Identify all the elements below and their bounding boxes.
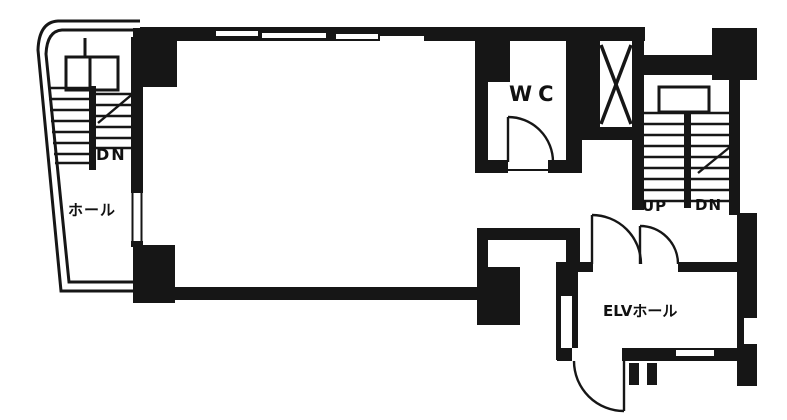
- wc-room-walls: [475, 40, 582, 173]
- door-swing-arc: [508, 117, 553, 162]
- main-room-left-wall: [131, 37, 143, 247]
- elv-hall-top-wall-right: [678, 262, 737, 272]
- elevator-hall-label: ELVホール: [603, 304, 677, 319]
- elv-hall-exit-door: [574, 361, 624, 411]
- elv-hall-left-window: [561, 296, 572, 353]
- door-swing-arc: [574, 361, 624, 411]
- left-stair-landing: [66, 57, 118, 90]
- right-stair-right-wall: [729, 75, 740, 215]
- door-stub: [647, 363, 657, 385]
- right-wall-window: [744, 318, 757, 344]
- right-stair-dn-label: DN: [695, 198, 722, 213]
- door-swing-arc: [592, 215, 641, 264]
- wc-door: [508, 117, 553, 162]
- right-stair-up-label: UP: [642, 199, 667, 214]
- elv-hall-bottom-window: [676, 350, 714, 356]
- elevator-bottom-wall: [582, 127, 644, 140]
- left-stair-break-line: [98, 92, 135, 123]
- door-swing-arc: [640, 226, 678, 264]
- landing-door-right: [640, 226, 678, 264]
- landing-door-left: [592, 215, 641, 264]
- right-stair-divider: [684, 111, 691, 208]
- elevator-left-wall: [582, 40, 600, 140]
- elevator-hall-walls: [556, 262, 757, 385]
- floorplan-drawing: [0, 0, 787, 420]
- top-wall: [140, 27, 645, 41]
- right-stair-landing: [659, 87, 709, 112]
- main-room-bottom-wall: [140, 287, 480, 300]
- elv-hall-left-wall: [556, 262, 578, 360]
- elevator-x-icon: [601, 45, 631, 124]
- right-stair-top-wall: [632, 55, 732, 75]
- wc-corner-block: [475, 40, 510, 82]
- corridor-bottom-wall: [477, 228, 580, 240]
- door-stub: [629, 363, 639, 385]
- wc-label: WC: [509, 84, 560, 105]
- floor-plan: DN ホール WC UP DN ELVホール: [0, 0, 787, 420]
- corridor-west-wall: [477, 228, 488, 278]
- hall-label: ホール: [68, 203, 116, 218]
- wc-right-wall: [566, 40, 582, 173]
- left-stair-dn-label: DN: [96, 147, 127, 163]
- elv-hall-bottom-wall: [557, 348, 757, 361]
